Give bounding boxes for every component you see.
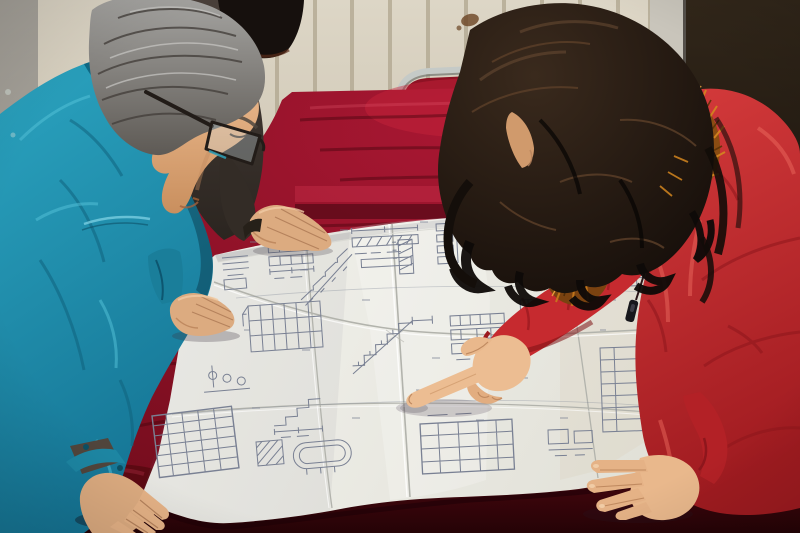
photo-scene (0, 0, 800, 533)
photo-vignette (0, 0, 800, 533)
scene-canvas (0, 0, 800, 533)
